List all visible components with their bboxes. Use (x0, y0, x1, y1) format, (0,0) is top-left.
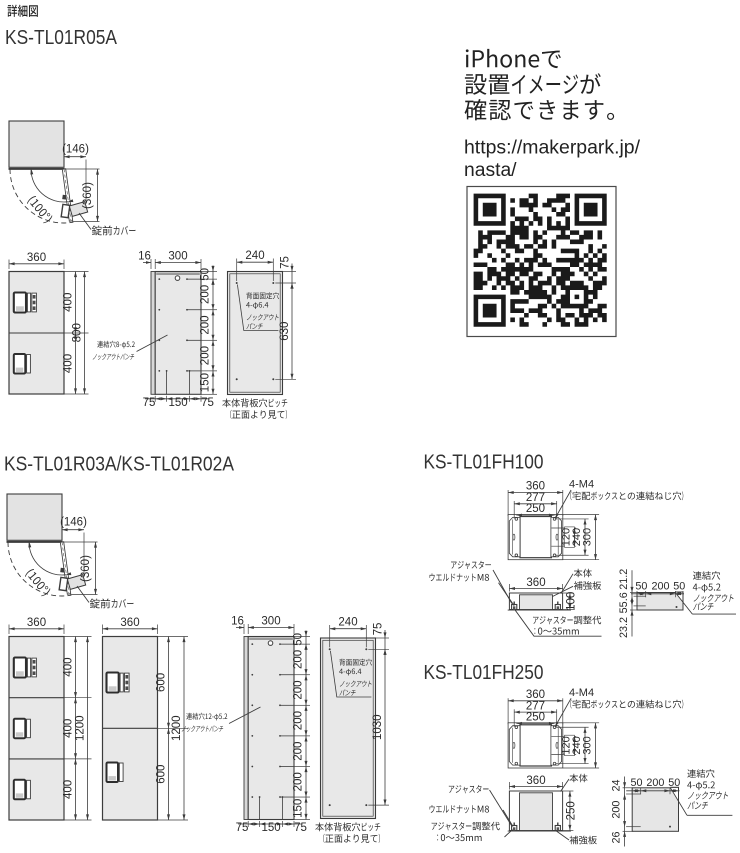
svg-text:300: 300 (168, 251, 187, 263)
svg-text:200: 200 (646, 777, 664, 789)
svg-text:300: 300 (582, 528, 594, 546)
svg-text:600: 600 (155, 673, 167, 692)
svg-text:1200: 1200 (74, 715, 86, 741)
svg-text:50: 50 (630, 777, 642, 789)
svg-text:(146): (146) (62, 144, 89, 156)
svg-text:800: 800 (71, 323, 83, 342)
svg-text:(360): (360) (82, 182, 94, 209)
svg-text:150: 150 (200, 373, 212, 392)
svg-text:360: 360 (526, 775, 545, 787)
svg-text:150: 150 (168, 397, 187, 409)
svg-text:KS-TL01R05A: KS-TL01R05A (5, 26, 117, 49)
svg-text:400: 400 (62, 719, 74, 738)
svg-text:360: 360 (526, 577, 545, 589)
svg-text:240: 240 (245, 250, 264, 262)
svg-text:26: 26 (610, 831, 622, 843)
svg-text:277: 277 (526, 492, 545, 504)
svg-text:250: 250 (566, 801, 578, 820)
svg-text:KS-TL01FH100: KS-TL01FH100 (424, 451, 544, 474)
svg-text:50: 50 (668, 777, 680, 789)
svg-text:(146): (146) (60, 517, 87, 529)
svg-text:nasta/: nasta/ (464, 160, 517, 181)
svg-text:75: 75 (143, 397, 156, 409)
svg-text:200: 200 (293, 650, 305, 669)
svg-text:200: 200 (293, 772, 305, 791)
svg-text:300: 300 (261, 616, 280, 628)
svg-text:200: 200 (200, 285, 212, 304)
svg-text:75: 75 (236, 822, 249, 834)
svg-text:50: 50 (200, 268, 212, 281)
svg-text:4-M4: 4-M4 (569, 479, 594, 491)
svg-text:360: 360 (526, 689, 545, 701)
svg-text:23.2: 23.2 (618, 617, 630, 638)
svg-text:16: 16 (231, 616, 244, 628)
svg-text:1030: 1030 (372, 714, 384, 740)
svg-text:600: 600 (155, 765, 167, 784)
svg-text:75: 75 (280, 256, 292, 269)
svg-text:50: 50 (293, 633, 305, 646)
svg-text:200: 200 (200, 346, 212, 365)
svg-text:21.2: 21.2 (618, 569, 630, 590)
svg-text:360: 360 (120, 617, 139, 629)
svg-text:50: 50 (673, 581, 685, 593)
svg-text:150: 150 (293, 799, 305, 818)
svg-text:360: 360 (27, 252, 46, 264)
svg-text:250: 250 (526, 712, 545, 724)
svg-text:200: 200 (200, 315, 212, 334)
svg-text:KS-TL01FH250: KS-TL01FH250 (424, 661, 544, 684)
svg-text:100: 100 (566, 592, 578, 611)
svg-text:360: 360 (526, 481, 545, 493)
svg-text:200: 200 (652, 581, 670, 593)
svg-text:(360): (360) (80, 555, 92, 582)
svg-text:4-M4: 4-M4 (569, 687, 594, 699)
svg-text:300: 300 (582, 736, 594, 754)
svg-text:630: 630 (279, 322, 291, 341)
svg-text:400: 400 (62, 293, 74, 312)
svg-text:200: 200 (293, 742, 305, 761)
svg-text:400: 400 (62, 354, 74, 373)
svg-text:55.6: 55.6 (618, 592, 630, 613)
svg-text:200: 200 (293, 680, 305, 699)
svg-text:200: 200 (610, 801, 622, 819)
svg-text:75: 75 (201, 397, 214, 409)
svg-text:1200: 1200 (171, 715, 183, 741)
svg-text:360: 360 (27, 617, 46, 629)
svg-text:277: 277 (526, 700, 545, 712)
svg-text:50: 50 (635, 581, 647, 593)
svg-text:240: 240 (338, 617, 357, 629)
svg-text:200: 200 (293, 711, 305, 730)
svg-text:75: 75 (373, 623, 385, 636)
svg-text:24: 24 (610, 779, 622, 791)
svg-text:400: 400 (62, 780, 74, 799)
svg-text:75: 75 (294, 822, 307, 834)
svg-text:16: 16 (138, 251, 151, 263)
svg-text:150: 150 (261, 822, 280, 834)
svg-text:https://makerpark.jp/: https://makerpark.jp/ (464, 137, 641, 158)
svg-text:250: 250 (526, 503, 545, 515)
svg-text:400: 400 (62, 658, 74, 677)
svg-text:KS-TL01R03A/KS-TL01R02A: KS-TL01R03A/KS-TL01R02A (4, 453, 234, 476)
